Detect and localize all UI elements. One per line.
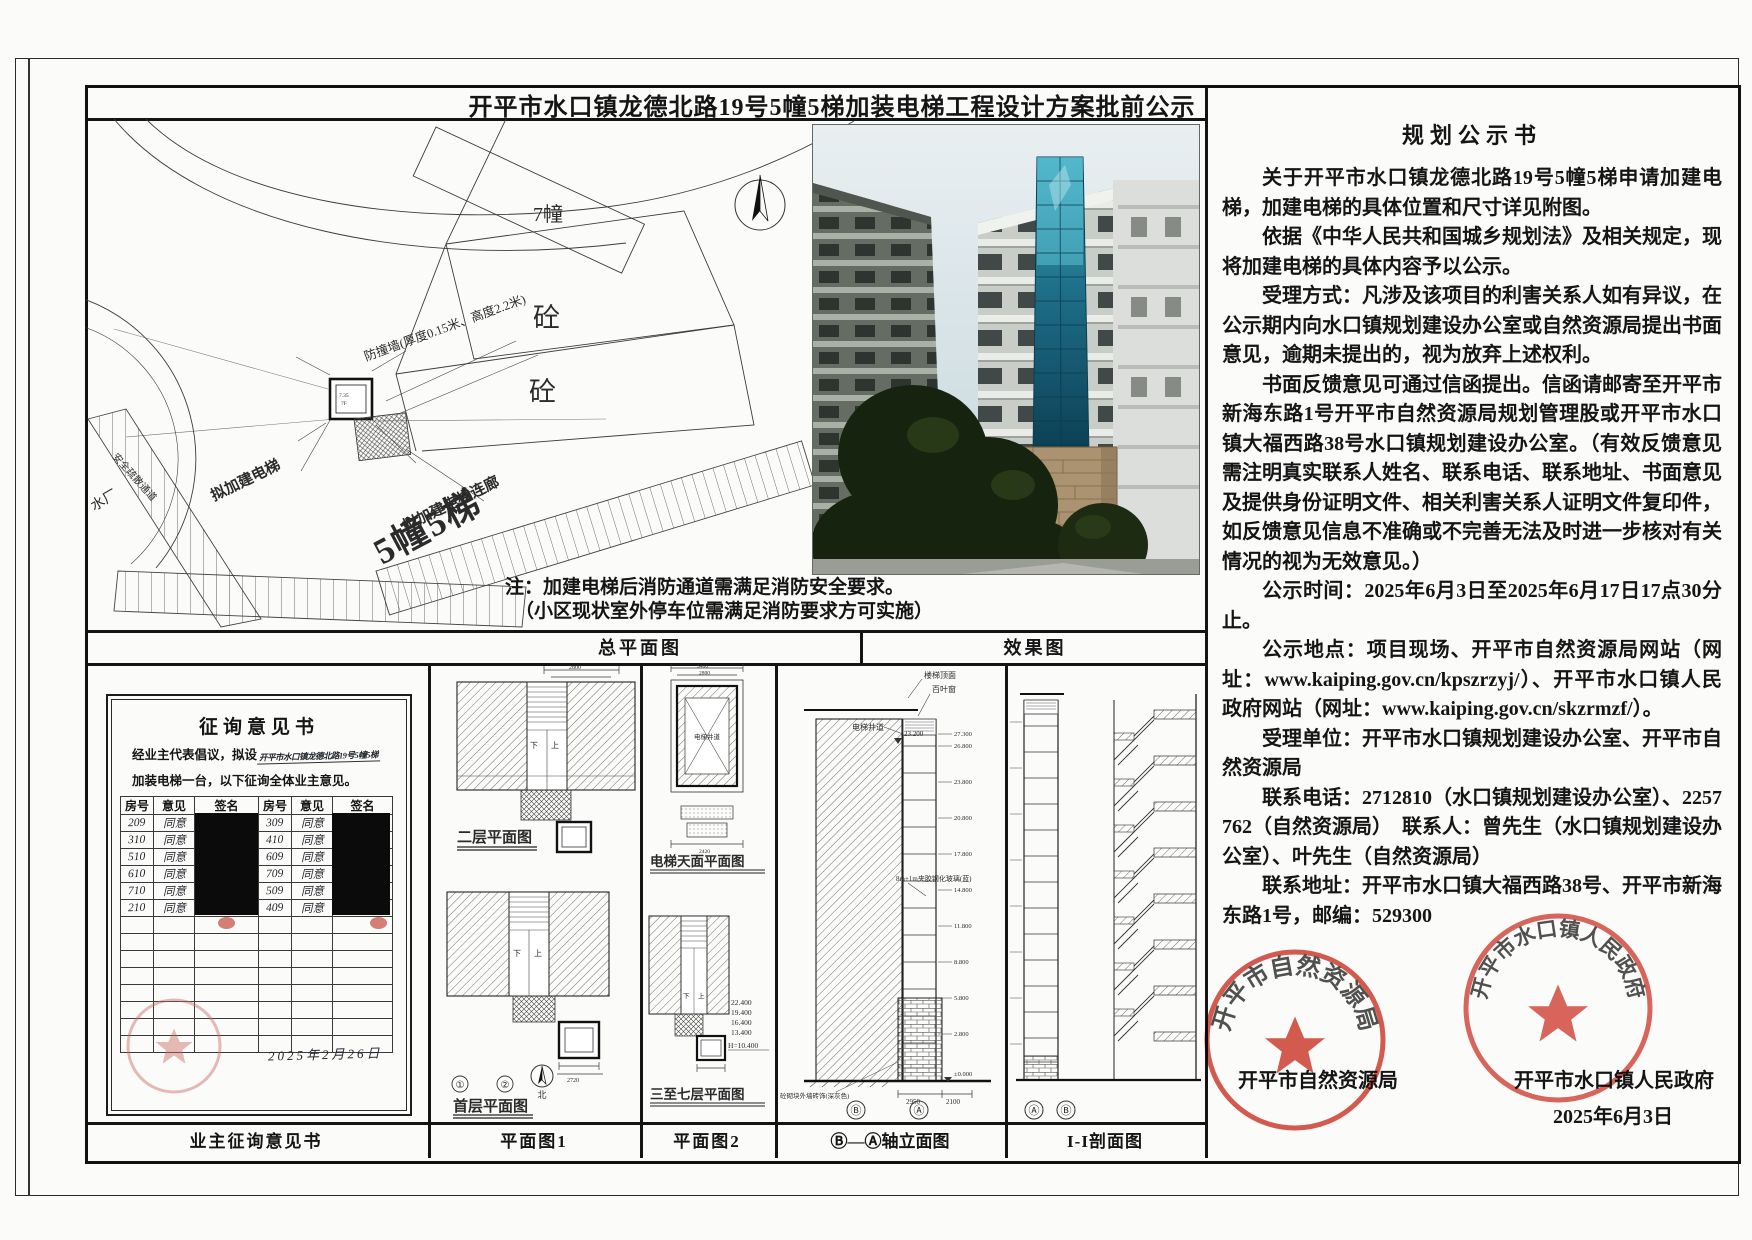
col-opinion2: 意见 xyxy=(292,797,333,815)
plan1-panel-label: 平面图1 xyxy=(454,1127,614,1152)
col-room2: 房号 xyxy=(259,797,292,815)
signature-redaction-right xyxy=(332,813,390,915)
svg-text:27.300: 27.300 xyxy=(954,731,972,738)
official-stamps: 开平市自然资源局 开平市水口镇人民政府 xyxy=(1190,890,1750,1190)
thumbprint-left xyxy=(218,917,235,929)
notice-title: 规划公示书 xyxy=(1222,118,1722,150)
section-left-ticks xyxy=(1010,722,1022,1044)
owner-stamp-icon xyxy=(120,992,228,1100)
glass-note: 8m+1m夹胶钢化玻璃(蓝) xyxy=(896,874,972,883)
notice-paragraph: 公示时间：2025年6月3日至2025年6月17日17点30分止。 xyxy=(1222,577,1722,636)
strip-top-line xyxy=(88,630,1205,633)
consultation-intro-1: 经业主代表倡议，拟设开平市水口镇龙德北路19号5幢5梯 xyxy=(132,744,380,763)
notice-paragraph: 联系电话：2712810（水口镇规划建设办公室）、2257762（自然资源局） … xyxy=(1222,784,1722,873)
svg-text:上: 上 xyxy=(551,741,559,750)
fire-note-line1: 注：加建电梯后消防通道需满足消防安全要求。 xyxy=(505,576,1177,600)
site-plan-drawing: 7.35 7F 7幢 砼 砼 防撞墙(厚度0.15米、高度2.2米) 拟加建电梯… xyxy=(86,119,858,628)
svg-text:2.800: 2.800 xyxy=(954,1031,969,1038)
scanned-notice-page: { "page": { "title": "开平市水口镇龙德北路19号5幢5梯加… xyxy=(0,0,1752,1240)
notice-paragraph: 关于开平市水口镇龙德北路19号5幢5梯申请加建电梯，加建电梯的具体位置和尺寸详见… xyxy=(1222,164,1722,223)
fire-note-line2: （小区现状室外停车位需满足消防要求方可实施） xyxy=(505,600,1177,624)
plan2-drawing: 3400 2800 电梯井道 2420 电梯天面平面图 下 上 22.400 1… xyxy=(641,664,774,1121)
table-row-empty xyxy=(121,951,393,968)
plan1-north-label: 北 xyxy=(537,1090,546,1100)
bottom-strip-line xyxy=(88,1122,1205,1125)
plan1-lower-label: 首层平面图 xyxy=(453,1097,528,1115)
elevation-panel-label: Ⓑ—Ⓐ轴立面图 xyxy=(795,1127,985,1152)
svg-text:16.400: 16.400 xyxy=(731,1018,752,1027)
axis-circle-b2: Ⓑ xyxy=(1061,1104,1072,1117)
notice-paragraph: 公示地点：项目现场、开平市自然资源局网站（网址：www.kaiping.gov.… xyxy=(1222,636,1722,725)
photo-panel-label: 效果图 xyxy=(955,634,1115,660)
svg-text:23.800: 23.800 xyxy=(954,779,972,786)
plan2-upper-label: 电梯天面平面图 xyxy=(650,853,745,869)
concrete-label-1: 砼 xyxy=(533,303,560,333)
plan1-upper-label: 二层平面图 xyxy=(457,829,532,846)
col-signature: 签名 xyxy=(195,797,259,815)
svg-text:19.400: 19.400 xyxy=(731,1008,752,1017)
svg-text:26.800: 26.800 xyxy=(954,743,972,750)
svg-text:下: 下 xyxy=(530,741,538,750)
signature-redaction-left xyxy=(195,813,258,915)
svg-text:上: 上 xyxy=(698,991,705,1000)
page-title: 开平市水口镇龙德北路19号5幢5梯加装电梯工程设计方案批前公示 xyxy=(462,87,1202,122)
plan1-drawing: 2800 下 上 二层平面图 下 上 2720 ① ② 北 首层平面图 xyxy=(429,664,639,1121)
axis-circle-1: ① xyxy=(456,1080,465,1091)
col-room: 房号 xyxy=(121,797,154,815)
svg-text:3400: 3400 xyxy=(697,664,708,670)
fire-safety-note: 注：加建电梯后消防通道需满足消防安全要求。 （小区现状室外停车位需满足消防要求方… xyxy=(505,576,1177,624)
axis-circle-2: ② xyxy=(501,1080,510,1091)
svg-text:13.400: 13.400 xyxy=(731,1028,752,1037)
table-row-empty xyxy=(121,968,393,985)
roof-label: 楼梯顶面 xyxy=(924,670,956,680)
water-plant-label: 水厂 xyxy=(88,487,120,515)
svg-text:11.800: 11.800 xyxy=(954,923,972,930)
elevation-drawing: 楼梯顶面 百叶窗 电梯井道 23.200 27.300 26.800 23.80… xyxy=(776,664,1004,1121)
svg-text:下: 下 xyxy=(683,992,690,1000)
consultation-panel-label: 业主征询意见书 xyxy=(151,1127,361,1152)
building-photo xyxy=(812,124,1200,575)
svg-text:17.800: 17.800 xyxy=(954,851,972,858)
strip-divider xyxy=(860,630,863,663)
svg-text:14.800: 14.800 xyxy=(954,887,972,894)
section-drawing: Ⓐ Ⓑ xyxy=(1006,664,1204,1121)
thumbprint-right xyxy=(370,917,387,929)
site-plan-panel-label: 总平面图 xyxy=(555,634,725,660)
building7-label: 7幢 xyxy=(533,203,563,226)
detail-elevation-text: 7.35 xyxy=(339,393,349,399)
svg-text:20.800: 20.800 xyxy=(954,815,972,822)
plan1-dim-top: 2800 xyxy=(569,665,581,671)
crash-wall-note: 防撞墙(厚度0.15米、高度2.2米) xyxy=(362,291,528,364)
axis-circle-b: Ⓑ xyxy=(851,1104,862,1117)
notice-paragraph: 受理方式：凡涉及该项目的利害关系人如有异议，在公示期内向水口镇规划建设办公室或自… xyxy=(1222,282,1722,371)
consultation-intro-2: 加装电梯一台，以下征询全体业主意见。 xyxy=(132,770,357,789)
svg-text:8.800: 8.800 xyxy=(954,959,969,966)
svg-text:下: 下 xyxy=(513,949,521,958)
section-floors xyxy=(1114,710,1196,1041)
concrete-label-2: 砼 xyxy=(529,377,556,407)
notice-paragraph: 受理单位：开平市水口镇规划建设办公室、开平市自然资源局 xyxy=(1222,725,1722,784)
detail-floor-text: 7F xyxy=(341,401,347,407)
table-row-empty xyxy=(121,934,393,951)
consultation-handwritten-fill: 开平市水口镇龙德北路19号5幢5梯 xyxy=(257,748,380,764)
plan2-shaft-label: 电梯井道 xyxy=(694,732,721,741)
svg-text:5.800: 5.800 xyxy=(954,995,969,1002)
svg-text:上: 上 xyxy=(534,949,542,958)
axis-circle-a: Ⓐ xyxy=(914,1104,925,1117)
plan2-elevations: 22.400 19.400 16.400 13.400 H=10.400 xyxy=(728,998,769,1050)
binding-rule xyxy=(28,58,30,1196)
plan2-panel-label: 平面图2 xyxy=(637,1127,777,1152)
ground-level-flag: ±0.000 xyxy=(954,1071,972,1078)
notice-paragraph: 依据《中华人民共和国城乡规划法》及相关规定，现将加建电梯的具体内容予以公示。 xyxy=(1222,223,1722,282)
plan2-lower-label: 三至七层平面图 xyxy=(650,1087,745,1102)
consultation-title: 征询意见书 xyxy=(108,712,410,739)
section-stairs xyxy=(1114,716,1154,1041)
section-panel-label: I-I剖面图 xyxy=(1025,1127,1185,1152)
table-header-row: 房号 意见 签名 房号 意见 签名 xyxy=(121,797,393,815)
svg-text:2100: 2100 xyxy=(946,1098,961,1106)
proposed-elevator-label: 拟加建电梯 xyxy=(208,456,283,505)
level-flags xyxy=(938,734,952,1034)
planning-notice: 规划公示书 关于开平市水口镇龙德北路19号5幢5梯申请加建电梯，加建电梯的具体位… xyxy=(1222,118,1722,931)
plan1-dim-bottom: 2720 xyxy=(567,1078,579,1084)
louver-label: 百叶窗 xyxy=(932,684,956,694)
svg-text:2800: 2800 xyxy=(699,671,710,677)
svg-text:22.400: 22.400 xyxy=(731,998,752,1007)
table-row-empty xyxy=(121,917,393,934)
finish-note: 砼砌块外墙砖饰(深灰色) xyxy=(780,1091,849,1100)
col-signature2: 签名 xyxy=(333,797,393,815)
col-opinion: 意见 xyxy=(154,797,195,815)
consultation-date: 2025年2月26日 xyxy=(268,1043,383,1065)
top-level-flag: 23.200 xyxy=(904,730,924,738)
notice-paragraph: 书面反馈意见可通过信函提出。信函请邮寄至开平市新海东路1号开平市自然资源局规划管… xyxy=(1222,371,1722,578)
axis-circle-a2: Ⓐ xyxy=(1029,1104,1040,1117)
consultation-form: 征询意见书 经业主代表倡议，拟设开平市水口镇龙德北路19号5幢5梯 加装电梯一台… xyxy=(106,694,412,1116)
svg-text:H=10.400: H=10.400 xyxy=(728,1041,759,1050)
